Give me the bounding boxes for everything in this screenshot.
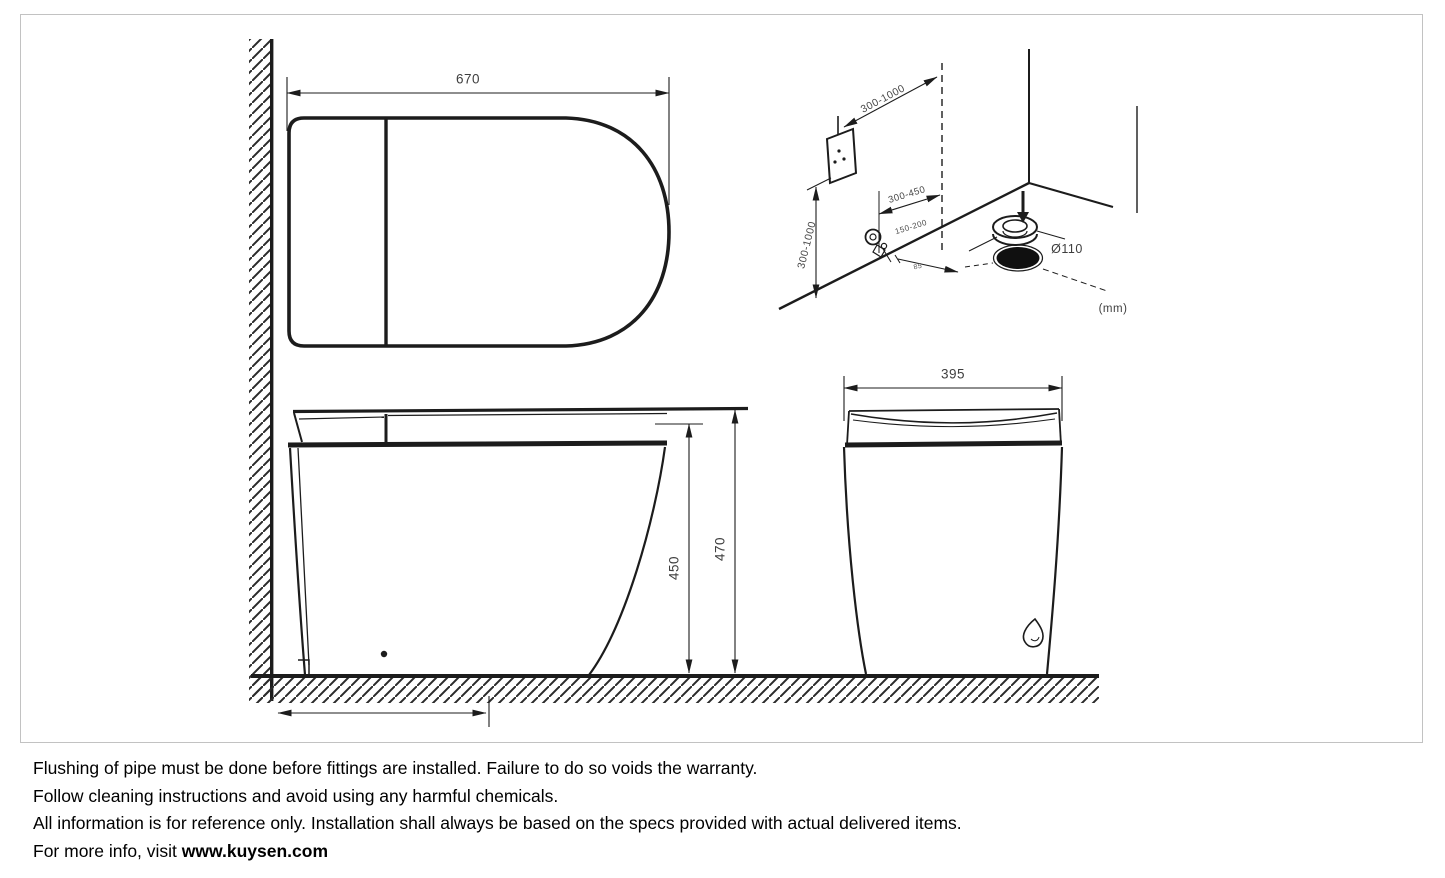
wall-section bbox=[249, 39, 273, 701]
note-line-4: For more info, visit www.kuysen.com bbox=[33, 838, 962, 866]
footer-notes: Flushing of pipe must be done before fit… bbox=[33, 755, 962, 865]
floor-section bbox=[251, 674, 1099, 703]
dim-overall-height: 470 bbox=[713, 537, 728, 561]
drawing-frame: 670 450 470 395 300-1000 300-1000 300-45… bbox=[20, 14, 1423, 743]
dim-front-view-width: 395 bbox=[941, 367, 965, 382]
website-url: www.kuysen.com bbox=[182, 841, 328, 861]
power-outlet bbox=[827, 116, 856, 183]
note-line-4-prefix: For more info, visit bbox=[33, 841, 182, 861]
technical-drawing bbox=[21, 15, 1422, 742]
drain-hole bbox=[994, 245, 1043, 271]
water-drop-icon bbox=[1023, 619, 1043, 647]
front-view bbox=[844, 376, 1062, 674]
dim-drain-diameter: Ø110 bbox=[1051, 242, 1083, 256]
installation-detail bbox=[779, 49, 1137, 309]
note-line-3: All information is for reference only. I… bbox=[33, 810, 962, 838]
dim-seat-height: 450 bbox=[667, 556, 682, 580]
dim-top-view-width: 670 bbox=[456, 72, 480, 87]
note-line-2: Follow cleaning instructions and avoid u… bbox=[33, 783, 962, 811]
top-view bbox=[287, 77, 669, 346]
note-line-1: Flushing of pipe must be done before fit… bbox=[33, 755, 962, 783]
water-supply-valve bbox=[866, 230, 887, 258]
unit-note: (mm) bbox=[1099, 303, 1128, 315]
